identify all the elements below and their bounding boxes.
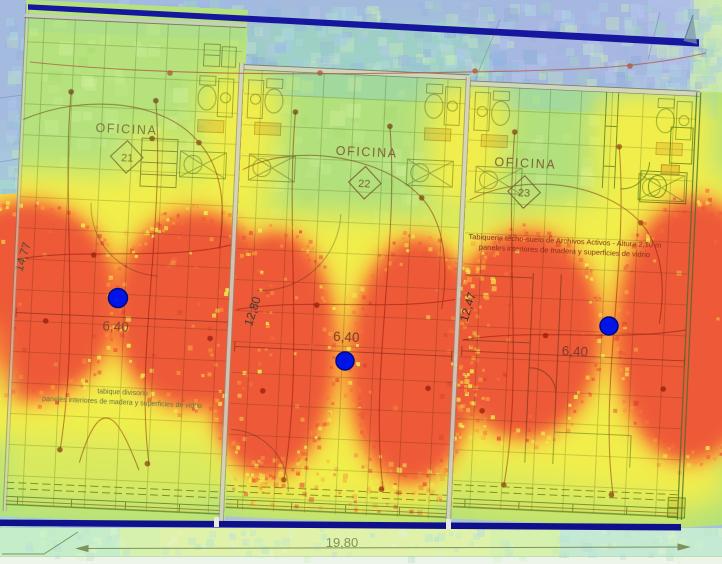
svg-text:21: 21 xyxy=(121,152,134,165)
svg-text:OFICINA: OFICINA xyxy=(494,155,556,172)
svg-text:19,80: 19,80 xyxy=(326,535,359,550)
svg-text:23: 23 xyxy=(518,187,531,200)
svg-text:OFICINA: OFICINA xyxy=(95,121,157,138)
svg-text:6,40: 6,40 xyxy=(102,318,129,334)
svg-text:6,40: 6,40 xyxy=(561,343,588,359)
svg-text:6,40: 6,40 xyxy=(333,329,360,345)
svg-text:22: 22 xyxy=(358,178,371,191)
svg-text:OFICINA: OFICINA xyxy=(335,144,397,161)
